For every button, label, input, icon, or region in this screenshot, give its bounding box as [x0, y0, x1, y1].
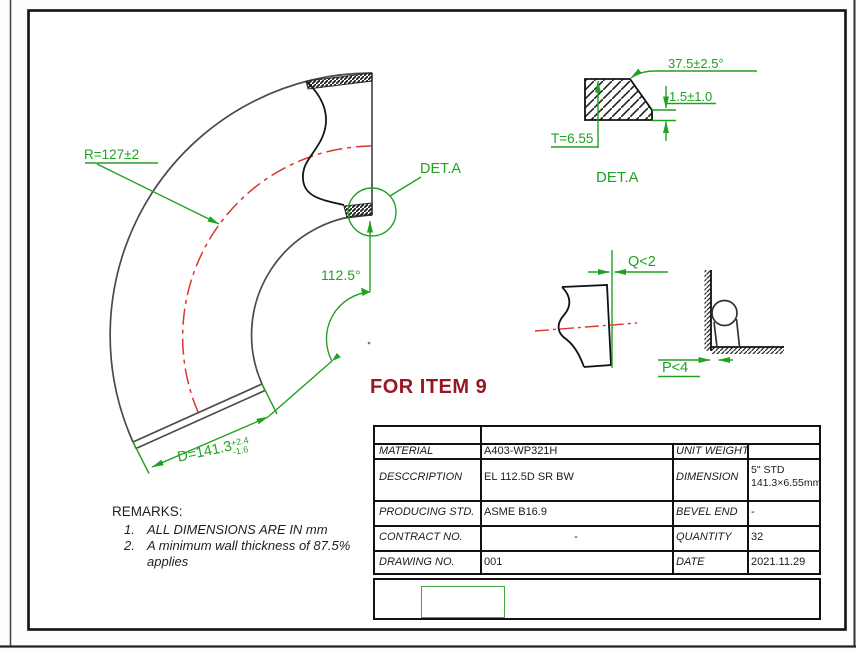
- remark-item: 1. ALL DIMENSIONS ARE IN mm: [112, 522, 372, 538]
- table-value: -: [480, 531, 672, 543]
- remark-text: A minimum wall thickness of 87.5% applie…: [147, 538, 352, 570]
- table-label: BEVEL END: [676, 506, 738, 518]
- table-value: ASME B16.9: [484, 506, 547, 518]
- table-label: DATE: [676, 556, 705, 568]
- table-label: DIMENSION: [676, 471, 738, 483]
- remarks-block: REMARKS: 1. ALL DIMENSIONS ARE IN mm 2. …: [112, 504, 372, 570]
- dimension-detail: 141.3×6.55mm: [751, 477, 821, 490]
- detail-reference-label: DET.A: [420, 161, 461, 177]
- wall-hatch: [705, 270, 712, 351]
- remarks-title: REMARKS:: [112, 504, 372, 519]
- floor-hatch: [711, 347, 784, 354]
- table-label: DRAWING NO.: [379, 556, 455, 568]
- remark-item: 2. A minimum wall thickness of 87.5% app…: [112, 538, 372, 570]
- root-face-label: 1.5±1.0: [669, 89, 712, 104]
- detail-view-title: DET.A: [596, 169, 639, 186]
- drawing-sheet: R=127±2 112.5° DET.A D=141.3 +2.4 -1.6 3…: [0, 0, 856, 652]
- table-label: DESCCRIPTION: [379, 471, 462, 483]
- item-note: FOR ITEM 9: [370, 376, 487, 399]
- squareness-tolerance-label: Q<2: [628, 254, 656, 270]
- table-label: MATERIAL: [379, 445, 433, 457]
- remark-text: ALL DIMENSIONS ARE IN mm: [147, 522, 352, 538]
- dimension-size: 5" STD: [751, 464, 821, 477]
- bevel-angle-label: 37.5±2.5°: [668, 56, 724, 71]
- table-value: 001: [484, 556, 502, 568]
- title-block-table: MATERIAL A403-WP321H UNIT WEIGHT DESCCRI…: [373, 425, 821, 575]
- table-value: -: [751, 506, 755, 518]
- table-label: QUANTITY: [676, 531, 732, 543]
- table-value-dimension: 5" STD 141.3×6.55mm: [751, 464, 821, 490]
- table-value: EL 112.5D SR BW: [484, 471, 574, 483]
- radius-dimension-label: R=127±2: [84, 147, 139, 162]
- bend-angle-label: 112.5°: [321, 267, 361, 283]
- bend-center-mark: [368, 342, 371, 345]
- table-label: CONTRACT NO.: [379, 531, 463, 543]
- table-label: PRODUCING STD.: [379, 506, 474, 518]
- table-value: 2021.11.29: [751, 556, 805, 568]
- remark-number: 2.: [124, 538, 147, 570]
- flatness-tolerance-label: P<4: [662, 360, 688, 376]
- wall-thickness-label: T=6.55: [551, 131, 593, 146]
- remark-number: 1.: [124, 522, 147, 538]
- table-value: 32: [751, 531, 763, 543]
- table-label: UNIT WEIGHT: [676, 445, 749, 457]
- title-block-footer: [373, 578, 821, 620]
- stamp-box: [421, 586, 505, 618]
- table-value: A403-WP321H: [484, 445, 557, 457]
